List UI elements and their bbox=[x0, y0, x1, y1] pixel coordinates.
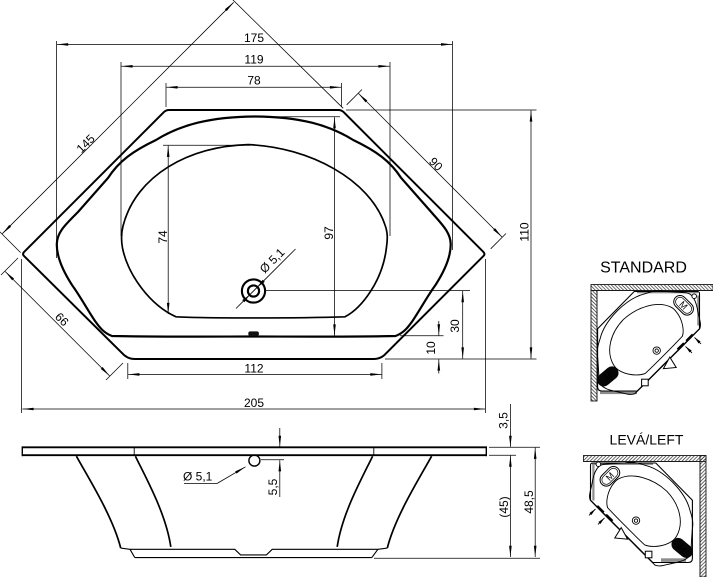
svg-text:110: 110 bbox=[517, 222, 531, 241]
svg-text:119: 119 bbox=[244, 53, 263, 67]
svg-text:48,5: 48,5 bbox=[522, 490, 536, 514]
svg-text:78: 78 bbox=[247, 74, 261, 88]
svg-text:LEVÁ/LEFT: LEVÁ/LEFT bbox=[610, 431, 684, 447]
svg-text:3,5: 3,5 bbox=[497, 412, 511, 429]
svg-text:Ø 5,1: Ø 5,1 bbox=[183, 470, 213, 484]
svg-text:205: 205 bbox=[244, 396, 264, 410]
svg-text:STANDARD: STANDARD bbox=[600, 260, 687, 277]
svg-text:30: 30 bbox=[448, 319, 462, 333]
svg-text:(45): (45) bbox=[497, 496, 511, 517]
svg-text:5,5: 5,5 bbox=[266, 478, 280, 495]
svg-text:112: 112 bbox=[244, 362, 263, 376]
svg-text:175: 175 bbox=[244, 31, 264, 45]
svg-text:74: 74 bbox=[156, 230, 170, 244]
svg-text:97: 97 bbox=[322, 226, 336, 240]
svg-text:10: 10 bbox=[424, 341, 438, 355]
